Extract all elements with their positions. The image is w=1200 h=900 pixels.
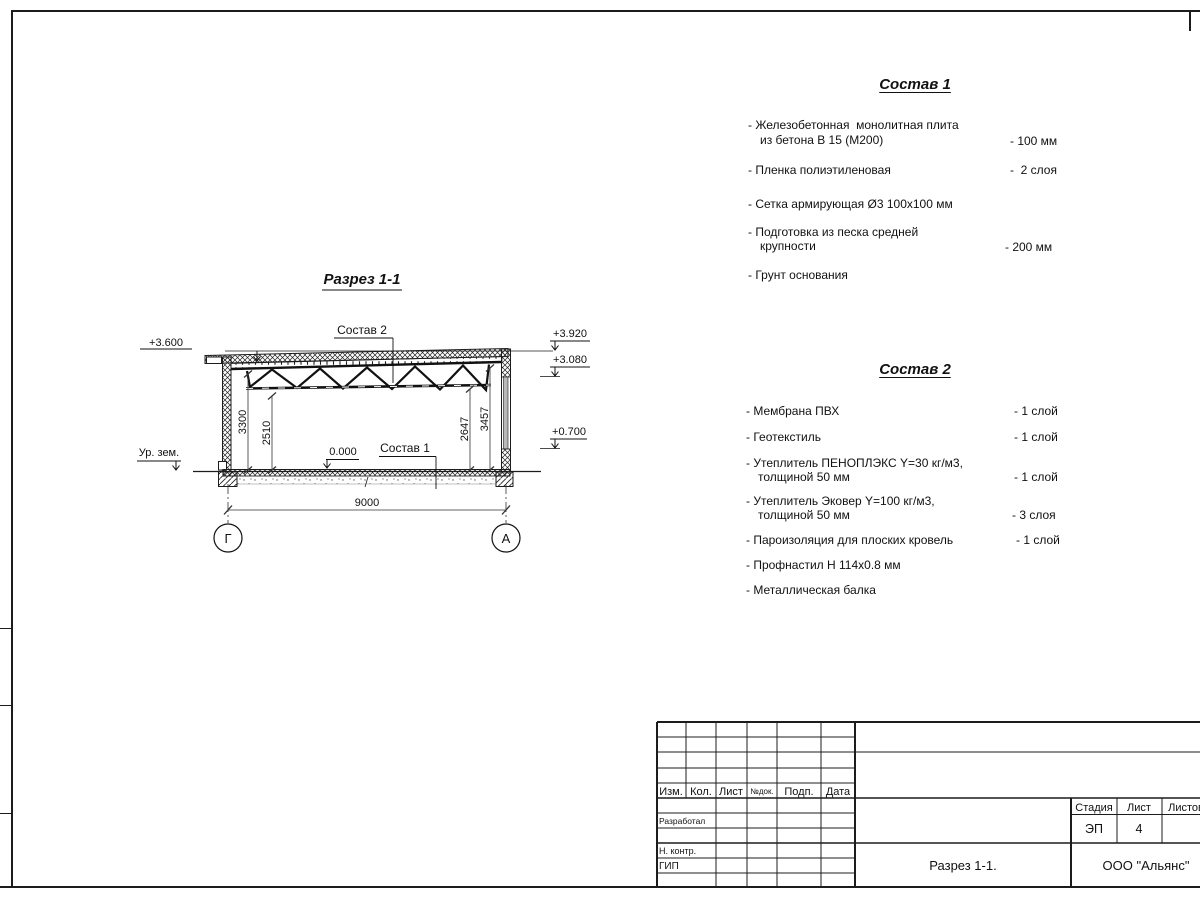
fold-mark [0, 628, 11, 629]
sheet-value: 4 [1136, 822, 1143, 836]
svg-text:+3.920: +3.920 [553, 328, 587, 340]
axis-letter-left: Г [224, 531, 231, 546]
col-izm: Изм. [659, 786, 683, 798]
company-name: ООО "Альянс" [1103, 858, 1190, 873]
fold-mark [0, 705, 11, 706]
col-kol: Кол. [690, 786, 712, 798]
sostav1-title: Состав 1 [845, 76, 985, 93]
col-list: Лист [719, 786, 743, 798]
list-line: - Утеплитель Эковер Y=100 кг/м3, [746, 494, 935, 508]
span-dimension: 9000 [224, 484, 510, 523]
title-block-values: ЭП 4 Разрез 1-1. ООО "Альянс" [929, 822, 1190, 873]
svg-text:0.000: 0.000 [329, 446, 357, 458]
ground-level-mark: Ур. зем. [137, 447, 181, 470]
zero-level-mark: 0.000 [324, 446, 360, 468]
col-podp: Подп. [784, 786, 813, 798]
svg-text:+3.600: +3.600 [149, 337, 183, 349]
title-block: Изм. Кол. Лист №док. Подп. Дата Разработ… [0, 715, 1200, 900]
doc-title: Разрез 1-1. [929, 858, 996, 873]
list-line: - Подготовка из песка средней [748, 225, 918, 239]
section-drawing: Разрез 1-1 [125, 263, 615, 563]
list-line: - Железобетонная монолитная плита [748, 118, 959, 132]
svg-text:Состав 1: Состав 1 [380, 441, 430, 455]
list-line: крупности [760, 239, 816, 253]
section-title: Разрез 1-1 [323, 271, 400, 288]
axis-letter-right: А [502, 531, 511, 546]
col-ndok: №док. [750, 787, 773, 796]
elevation-right-low: +0.700 [540, 426, 587, 449]
list-line: - Геотекстиль [746, 430, 821, 444]
list-line: из бетона В 15 (М200) [760, 133, 883, 147]
role-gip: ГИП [659, 861, 679, 872]
list-line: - Утеплитель ПЕНОПЛЭКС Y=30 кг/м3, [746, 456, 963, 470]
svg-text:2510: 2510 [261, 421, 273, 445]
svg-text:2647: 2647 [459, 417, 471, 441]
list-value: - 1 слой [1014, 470, 1058, 484]
elevation-right-top: +3.920 [550, 328, 590, 350]
col-data: Дата [826, 786, 851, 798]
svg-text:Состав 2: Состав 2 [337, 323, 387, 337]
list-line: - Пленка полиэтиленовая [748, 163, 891, 177]
svg-text:Ур. зем.: Ур. зем. [139, 447, 179, 459]
list-line: толщиной 50 мм [758, 508, 850, 522]
dimensions-vertical: 3300 2510 2647 3457 [237, 365, 494, 474]
role-nkontr: Н. контр. [659, 846, 696, 856]
elevation-right-mid: +3.080 [540, 354, 590, 377]
sheets-label: Листов [1168, 802, 1200, 814]
svg-text:+3.080: +3.080 [553, 354, 587, 366]
axis-bubbles: Г А [214, 524, 520, 552]
frame-top [11, 10, 1200, 12]
list-line: - Грунт основания [748, 268, 848, 282]
stage-label: Стадия [1075, 802, 1113, 814]
role-razrabotal: Разработал [659, 816, 705, 826]
list-value: - 2 слоя [1010, 163, 1057, 177]
svg-text:3457: 3457 [479, 407, 491, 431]
list-line: - Профнастил Н 114x0.8 мм [746, 558, 901, 572]
frame-corner-segment [1189, 10, 1191, 31]
list-line: толщиной 50 мм [758, 470, 850, 484]
list-value: - 1 слой [1016, 533, 1060, 547]
list-line: - Металлическая балка [746, 583, 876, 597]
list-value: - 3 слоя [1012, 508, 1056, 522]
list-value: - 200 мм [1005, 240, 1052, 254]
list-value: - 1 слой [1014, 430, 1058, 444]
svg-text:3300: 3300 [237, 410, 249, 434]
svg-text:+0.700: +0.700 [552, 426, 586, 438]
list-line: - Мембрана ПВХ [746, 404, 839, 418]
stage-value: ЭП [1085, 822, 1103, 836]
list-line: - Пароизоляция для плоских кровель [746, 533, 953, 547]
list-value: - 100 мм [1010, 134, 1057, 148]
list-value: - 1 слой [1014, 404, 1058, 418]
sheet-label: Лист [1127, 802, 1151, 814]
svg-text:9000: 9000 [355, 497, 379, 509]
drawing-sheet: Разрез 1-1 [0, 0, 1200, 900]
sostav2-title: Состав 2 [845, 361, 985, 378]
list-line: - Сетка армирующая Ø3 100x100 мм [748, 197, 953, 211]
